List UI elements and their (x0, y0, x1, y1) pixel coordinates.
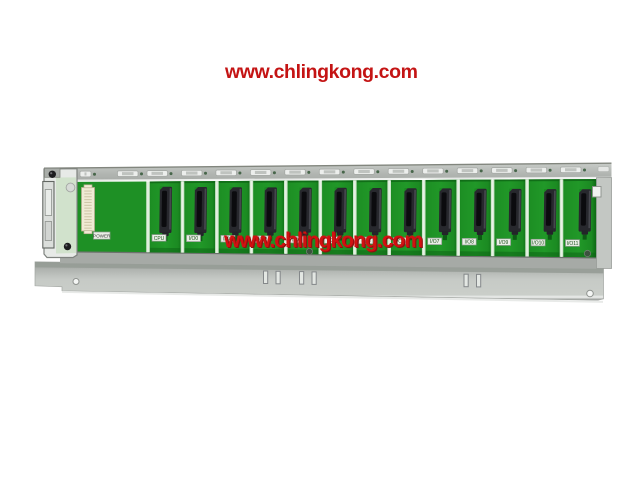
svg-text:I/O7: I/O7 (430, 239, 440, 245)
svg-text:I/O10: I/O10 (532, 241, 544, 247)
svg-text:www.chlingkong.com: www.chlingkong.com (224, 61, 418, 83)
svg-text:I/O9: I/O9 (499, 240, 509, 246)
svg-text:I/O11: I/O11 (567, 241, 579, 247)
svg-text:POWER: POWER (93, 234, 111, 239)
svg-text:I/O8: I/O8 (464, 240, 474, 246)
svg-text:I/O0: I/O0 (189, 236, 199, 242)
svg-text:CPU: CPU (154, 236, 165, 242)
svg-text:www.chlingkong.com: www.chlingkong.com (223, 229, 423, 252)
